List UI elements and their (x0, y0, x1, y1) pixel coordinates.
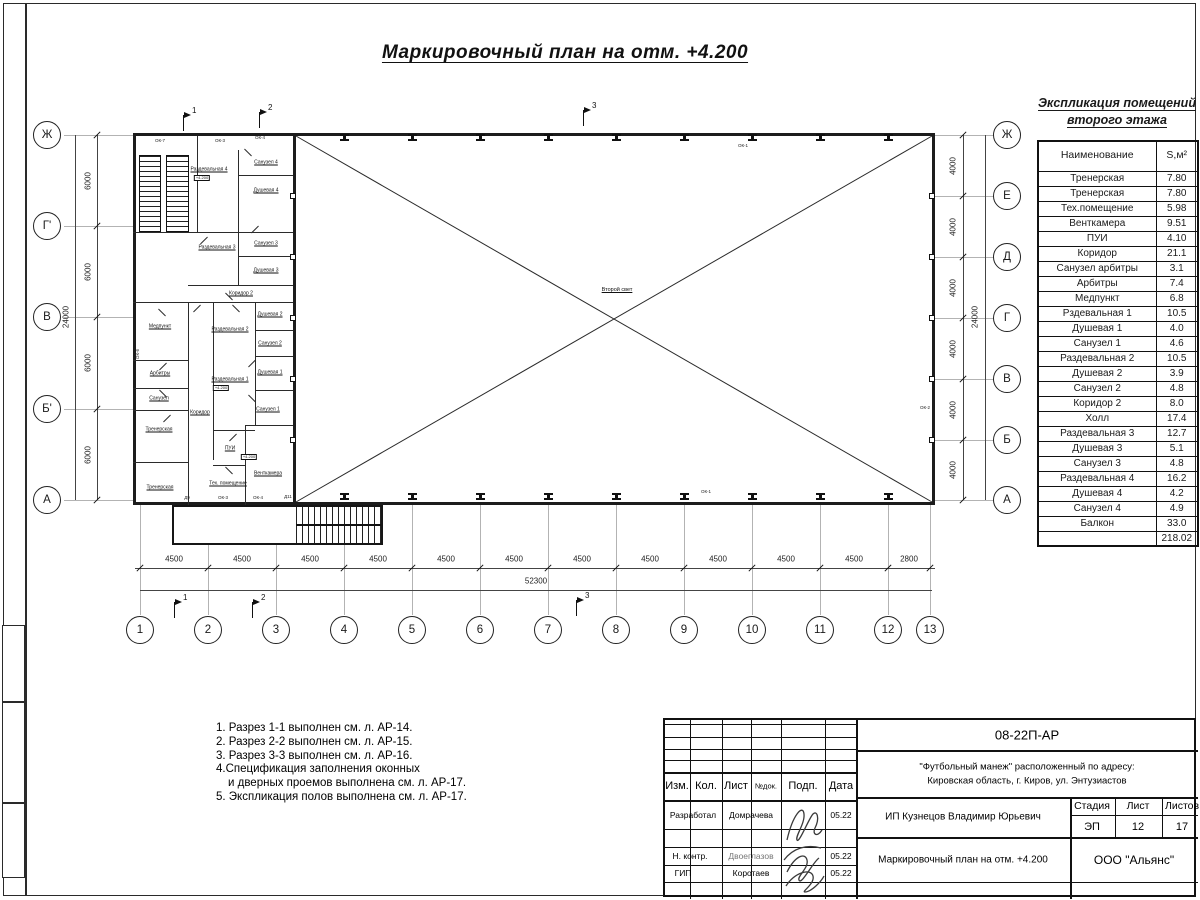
dimension-span-label: 4500 (845, 555, 863, 564)
partition-wall (133, 410, 188, 411)
schedule-room-name: Санузел 4 (1038, 501, 1156, 516)
section-marker-arrow (584, 107, 591, 113)
grid-bubble-row-right: Г (993, 304, 1021, 332)
column-symbol (476, 134, 485, 141)
schedule-total-empty (1038, 531, 1156, 546)
opening-label: ОК-2 (920, 406, 930, 411)
room-label: Тех. помещение (209, 482, 247, 487)
schedule-row: Санузел 44.9 (1038, 501, 1198, 516)
schedule-room-name: Душевая 3 (1038, 441, 1156, 456)
schedule-room-area: 7.80 (1156, 171, 1198, 186)
partition-wall (255, 330, 293, 331)
schedule-row: Санузел 14.6 (1038, 336, 1198, 351)
grid-bubble-row-right: Д (993, 243, 1021, 271)
schedule-room-area: 12.7 (1156, 426, 1198, 441)
schedule-row: Венткамера9.51 (1038, 216, 1198, 231)
notes-list: 1. Разрез 1-1 выполнен см. л. АР-14.2. Р… (216, 722, 467, 805)
opening-label: ОК-7 (155, 139, 165, 144)
schedule-room-name: Раздевальная 2 (1038, 351, 1156, 366)
partition-wall (255, 356, 293, 357)
room-label: Душевая 1 (257, 371, 282, 376)
grid-bubble-col: 13 (916, 616, 944, 644)
dimension-span-label: 4500 (369, 555, 387, 564)
schedule-col-area: S,м² (1156, 141, 1198, 171)
schedule-room-name: Балкон (1038, 516, 1156, 531)
column-symbol (884, 134, 893, 141)
partition-wall (133, 388, 188, 389)
opening-label: Д9 (184, 496, 190, 501)
stamp-sheet-label: Лист (1127, 800, 1150, 812)
schedule-row: Санузел 24.8 (1038, 381, 1198, 396)
opening-label: ОК-3 (218, 496, 228, 501)
stamp-col-izm: Изм. (665, 780, 689, 792)
room-label: Медпункт (149, 325, 171, 330)
dimension-span-label: 4500 (641, 555, 659, 564)
schedule-row: Тренерская7.80 (1038, 186, 1198, 201)
room-label: Венткамера (254, 472, 282, 477)
dimension-span-label: 4500 (437, 555, 455, 564)
column-symbol (929, 437, 935, 443)
dimension-span-label: 6000 (84, 354, 93, 372)
schedule-room-name: Душевая 2 (1038, 366, 1156, 381)
stamp-date-ncontr: 05.22 (830, 851, 851, 861)
frame-edge-box (2, 702, 25, 803)
schedule-room-area: 9.51 (1156, 216, 1198, 231)
section-marker-arrow (260, 109, 267, 115)
grid-bubble-col: 7 (534, 616, 562, 644)
schedule-row: Коридор 28.0 (1038, 396, 1198, 411)
room-label: ПУИ (225, 447, 235, 452)
room-label: Раздевальная 3 (198, 246, 235, 251)
grid-bubble-row-right: В (993, 365, 1021, 393)
opening-label: ОК-4 (253, 496, 263, 501)
schedule-room-area: 3.9 (1156, 366, 1198, 381)
opening-label: ОК-1 (738, 144, 748, 149)
column-symbol (290, 254, 296, 260)
schedule-room-area: 16.2 (1156, 471, 1198, 486)
room-label: Раздевальная 4 (190, 168, 227, 173)
room-label: Санузел 3 (254, 242, 278, 247)
schedule-room-area: 4.9 (1156, 501, 1198, 516)
stamp-sheets-label: Листов (1165, 800, 1199, 812)
schedule-row: Тренерская7.80 (1038, 171, 1198, 186)
schedule-room-area: 8.0 (1156, 396, 1198, 411)
partition-wall (238, 150, 239, 285)
column-symbol (544, 493, 553, 500)
section-marker-number: 2 (268, 103, 272, 112)
column-symbol (929, 315, 935, 321)
partition-wall (255, 390, 293, 391)
wall-top (133, 133, 935, 136)
schedule-room-area: 4.8 (1156, 456, 1198, 471)
partition-wall (188, 302, 189, 505)
note-line: и дверных проемов выполнена см. л. АР-17… (216, 777, 467, 791)
schedule-room-name: ПУИ (1038, 231, 1156, 246)
column-symbol (816, 493, 825, 500)
exterior-stair-stringer (296, 524, 381, 526)
grid-bubble-row-left: В (33, 303, 61, 331)
schedule-header-row: Наименование S,м² (1038, 141, 1198, 171)
dimension-span-label: 4000 (949, 461, 958, 479)
dimension-span-label: 4500 (777, 555, 795, 564)
stamp-sheet-value: 12 (1132, 821, 1144, 833)
schedule-room-area: 17.4 (1156, 411, 1198, 426)
column-symbol (544, 134, 553, 141)
partition-wall (188, 285, 293, 286)
signature-developer (783, 802, 825, 846)
elevation-mark: +4.200 (213, 385, 229, 391)
dimension-span-label: 4500 (165, 555, 183, 564)
stamp-name-gip: Коротаев (733, 868, 770, 878)
column-symbol (408, 493, 417, 500)
schedule-room-name: Коридор (1038, 246, 1156, 261)
dimension-span-label: 2800 (900, 555, 918, 564)
schedule-room-name: Санузел 3 (1038, 456, 1156, 471)
column-symbol (929, 254, 935, 260)
stamp-col-list: Лист (724, 780, 748, 792)
schedule-room-name: Арбитры (1038, 276, 1156, 291)
dimension-span-label: 4500 (301, 555, 319, 564)
schedule-row: Раздевальная 210.5 (1038, 351, 1198, 366)
dimension-span-label: 4000 (949, 340, 958, 358)
room-label: Душевая 2 (257, 313, 282, 318)
grid-bubble-row-right: Ж (993, 121, 1021, 149)
opening-label: ОК-3 (215, 139, 225, 144)
dimension-span-label: 4500 (505, 555, 523, 564)
schedule-row: Душевая 35.1 (1038, 441, 1198, 456)
section-marker-number: 3 (585, 591, 589, 600)
room-label: Тренерская (146, 428, 173, 433)
grid-bubble-row-left: А (33, 486, 61, 514)
schedule-room-name: Венткамера (1038, 216, 1156, 231)
grid-bubble-col: 3 (262, 616, 290, 644)
stamp-stage-value: ЭП (1084, 821, 1100, 833)
column-symbol (929, 193, 935, 199)
schedule-room-name: Санузел 2 (1038, 381, 1156, 396)
column-symbol (290, 315, 296, 321)
schedule-row: Санузел арбитры3.1 (1038, 261, 1198, 276)
partition-wall (133, 232, 293, 233)
stamp-col-kol: Кол. (695, 780, 717, 792)
room-label: Душевая 4 (253, 189, 278, 194)
room-label: Душевая 3 (253, 269, 278, 274)
section-marker-arrow (175, 599, 182, 605)
grid-bubble-col: 1 (126, 616, 154, 644)
partition-wall (213, 430, 255, 431)
column-symbol (612, 493, 621, 500)
room-label: Санузел 2 (258, 342, 282, 347)
schedule-room-name: Тех.помещение (1038, 201, 1156, 216)
partition-wall (238, 175, 293, 176)
grid-bubble-col: 4 (330, 616, 358, 644)
wall-left (133, 133, 136, 505)
section-marker-arrow (577, 597, 584, 603)
hall-diagonals (0, 0, 1200, 700)
column-symbol (748, 134, 757, 141)
stamp-role-ncontr: Н. контр. (672, 851, 707, 861)
schedule-room-area: 21.1 (1156, 246, 1198, 261)
stamp-name-developer: Домрачева (729, 810, 773, 820)
dimension-span-label: 4000 (949, 401, 958, 419)
opening-label: ОК-6 (136, 349, 141, 359)
elevation-mark: +4.200 (241, 454, 257, 460)
room-label: Санузел 1 (256, 408, 280, 413)
schedule-room-area: 4.0 (1156, 321, 1198, 336)
partition-wall (133, 302, 293, 303)
stamp-client: ИП Кузнецов Владимир Юрьевич (885, 812, 1041, 823)
stamp-role-developer: Разработал (670, 810, 716, 820)
schedule-total-row: 218.02 (1038, 531, 1198, 546)
schedule-room-area: 4.6 (1156, 336, 1198, 351)
column-symbol (680, 134, 689, 141)
schedule-room-area: 7.80 (1156, 186, 1198, 201)
schedule-row: Душевая 44.2 (1038, 486, 1198, 501)
schedule-room-name: Раздевальная 3 (1038, 426, 1156, 441)
note-line: 1. Разрез 1-1 выполнен см. л. АР-14. (216, 722, 467, 736)
room-schedule-table: Наименование S,м² Тренерская7.80Тренерск… (1037, 140, 1199, 547)
schedule-room-area: 10.5 (1156, 351, 1198, 366)
grid-bubble-col: 12 (874, 616, 902, 644)
grid-bubble-row-right: Б (993, 426, 1021, 454)
grid-bubble-row-left: Б' (33, 395, 61, 423)
schedule-row: Санузел 34.8 (1038, 456, 1198, 471)
dimension-span-label: 4000 (949, 157, 958, 175)
schedule-room-name: Холл (1038, 411, 1156, 426)
partition-wall (245, 425, 293, 426)
column-symbol (816, 134, 825, 141)
stamp-project-line1: "Футбольный манеж" расположенный по адре… (919, 762, 1134, 773)
column-symbol (612, 134, 621, 141)
grid-bubble-col: 10 (738, 616, 766, 644)
dimension-total-height: 24000 (971, 306, 980, 328)
schedule-room-area: 6.8 (1156, 291, 1198, 306)
column-symbol (680, 493, 689, 500)
grid-bubble-col: 9 (670, 616, 698, 644)
elevation-mark: +4.200 (194, 175, 210, 181)
dimension-span-label: 4500 (573, 555, 591, 564)
schedule-row: Раздевальная 312.7 (1038, 426, 1198, 441)
dimension-total-width: 52300 (525, 577, 547, 586)
note-line: 4.Спецификация заполнения оконных (216, 763, 467, 777)
schedule-row: Душевая 23.9 (1038, 366, 1198, 381)
opening-label: ОК-4 (255, 136, 265, 141)
frame-edge-box (2, 803, 25, 878)
column-symbol (290, 437, 296, 443)
note-line: 5. Экспликация полов выполнена см. л. АР… (216, 791, 467, 805)
section-marker-arrow (253, 599, 260, 605)
grid-bubble-row-left: Г' (33, 212, 61, 240)
partition-wall (133, 360, 188, 361)
stamp-col-data: Дата (829, 780, 853, 792)
opening-label: Д11 (284, 495, 292, 500)
title-block: Изм. Кол. Лист №док. Подп. Дата Разработ… (663, 718, 1196, 897)
stamp-name-ncontr: Двоеглазов (728, 851, 773, 861)
section-marker-number: 1 (192, 106, 196, 115)
schedule-room-area: 7.4 (1156, 276, 1198, 291)
schedule-row: Медпункт6.8 (1038, 291, 1198, 306)
hall-label: Второй свет (602, 287, 633, 293)
opening-label: ОК-1 (701, 490, 711, 495)
section-marker-number: 1 (183, 593, 187, 602)
column-symbol (476, 493, 485, 500)
schedule-col-name: Наименование (1038, 141, 1156, 171)
stamp-sheet-title: Маркировочный план на отм. +4.200 (878, 855, 1048, 866)
room-label: Раздевальная 2 (211, 328, 248, 333)
schedule-row: Балкон33.0 (1038, 516, 1198, 531)
partition-wall (197, 136, 198, 232)
note-line: 2. Разрез 2-2 выполнен см. л. АР-15. (216, 736, 467, 750)
schedule-room-area: 4.2 (1156, 486, 1198, 501)
signature-gip (781, 842, 827, 894)
column-symbol (748, 493, 757, 500)
column-symbol (408, 134, 417, 141)
column-symbol (884, 493, 893, 500)
schedule-room-name: Душевая 4 (1038, 486, 1156, 501)
section-marker-number: 3 (592, 101, 596, 110)
schedule-room-area: 3.1 (1156, 261, 1198, 276)
dimension-span-label: 6000 (84, 446, 93, 464)
schedule-room-name: Тренерская (1038, 186, 1156, 201)
schedule-row: Рздевальная 110.5 (1038, 306, 1198, 321)
grid-bubble-col: 5 (398, 616, 426, 644)
stamp-project-line2: Кировская область, г. Киров, ул. Энтузиа… (927, 776, 1126, 787)
stamp-sheets-value: 17 (1176, 821, 1188, 833)
schedule-room-name: Раздевальная 4 (1038, 471, 1156, 486)
dimension-span-label: 4500 (709, 555, 727, 564)
note-line: 3. Разрез 3-3 выполнен см. л. АР-16. (216, 750, 467, 764)
column-symbol (340, 493, 349, 500)
room-label: Коридор 2 (229, 292, 253, 297)
grid-bubble-col: 6 (466, 616, 494, 644)
grid-bubble-row-right: Е (993, 182, 1021, 210)
grid-bubble-row-left: Ж (33, 121, 61, 149)
column-symbol (929, 376, 935, 382)
schedule-room-name: Тренерская (1038, 171, 1156, 186)
drawing-sheet: Маркировочный план на отм. +4.200 (0, 0, 1200, 900)
schedule-room-name: Рздевальная 1 (1038, 306, 1156, 321)
schedule-room-area: 33.0 (1156, 516, 1198, 531)
dimension-span-label: 4500 (233, 555, 251, 564)
dimension-total-height: 24000 (62, 306, 71, 328)
stamp-date-developer: 05.22 (830, 810, 851, 820)
partition-wall (238, 256, 293, 257)
column-symbol (290, 376, 296, 382)
partition-wall (133, 462, 188, 463)
stamp-stage-label: Стадия (1074, 800, 1110, 812)
dimension-span-label: 4000 (949, 279, 958, 297)
schedule-room-area: 10.5 (1156, 306, 1198, 321)
grid-bubble-col: 11 (806, 616, 834, 644)
grid-bubble-row-right: А (993, 486, 1021, 514)
stamp-col-ndok: №док. (755, 782, 777, 791)
dimension-span-label: 4000 (949, 218, 958, 236)
schedule-room-area: 4.8 (1156, 381, 1198, 396)
section-marker-arrow (184, 112, 191, 118)
schedule-room-name: Медпункт (1038, 291, 1156, 306)
schedule-row: Арбитры7.4 (1038, 276, 1198, 291)
floor-plan: Второй свет 1234567891011121345004500450… (0, 0, 1200, 700)
schedule-row: ПУИ4.10 (1038, 231, 1198, 246)
room-label: Санузел 4 (254, 161, 278, 166)
schedule-row: Коридор21.1 (1038, 246, 1198, 261)
stamp-col-podp: Подп. (788, 780, 817, 792)
schedule-total-value: 218.02 (1156, 531, 1198, 546)
grid-bubble-col: 8 (602, 616, 630, 644)
schedule-row: Холл17.4 (1038, 411, 1198, 426)
schedule-title-line1: Экспликация помещений (1037, 96, 1197, 110)
room-label: Тренерская (147, 486, 174, 491)
staircase-stringer (160, 155, 167, 232)
partition-wall (213, 465, 245, 466)
schedule-room-area: 5.98 (1156, 201, 1198, 216)
stamp-date-gip: 05.22 (830, 868, 851, 878)
schedule-room-name: Душевая 1 (1038, 321, 1156, 336)
room-label: Арбитры (150, 372, 170, 377)
dimension-span-label: 6000 (84, 172, 93, 190)
schedule-room-name: Санузел арбитры (1038, 261, 1156, 276)
stamp-doc-number: 08-22П-АР (995, 728, 1059, 743)
schedule-room-area: 4.10 (1156, 231, 1198, 246)
schedule-row: Тех.помещение5.98 (1038, 201, 1198, 216)
column-symbol (290, 193, 296, 199)
schedule-row: Раздевальная 416.2 (1038, 471, 1198, 486)
column-symbol (340, 134, 349, 141)
room-label: Раздевальная 1 (211, 378, 248, 383)
schedule-row: Душевая 14.0 (1038, 321, 1198, 336)
schedule-room-name: Коридор 2 (1038, 396, 1156, 411)
room-label: Коридор (190, 411, 210, 416)
stamp-company: ООО "Альянс" (1094, 853, 1174, 867)
section-marker-number: 2 (261, 593, 265, 602)
dimension-span-label: 6000 (84, 263, 93, 281)
partition-wall (245, 425, 246, 505)
schedule-room-name: Санузел 1 (1038, 336, 1156, 351)
room-label: Санузел (149, 397, 168, 402)
schedule-title-line2: второго этажа (1037, 113, 1197, 127)
schedule-room-area: 5.1 (1156, 441, 1198, 456)
stamp-role-gip: ГИП (675, 868, 692, 878)
grid-bubble-col: 2 (194, 616, 222, 644)
